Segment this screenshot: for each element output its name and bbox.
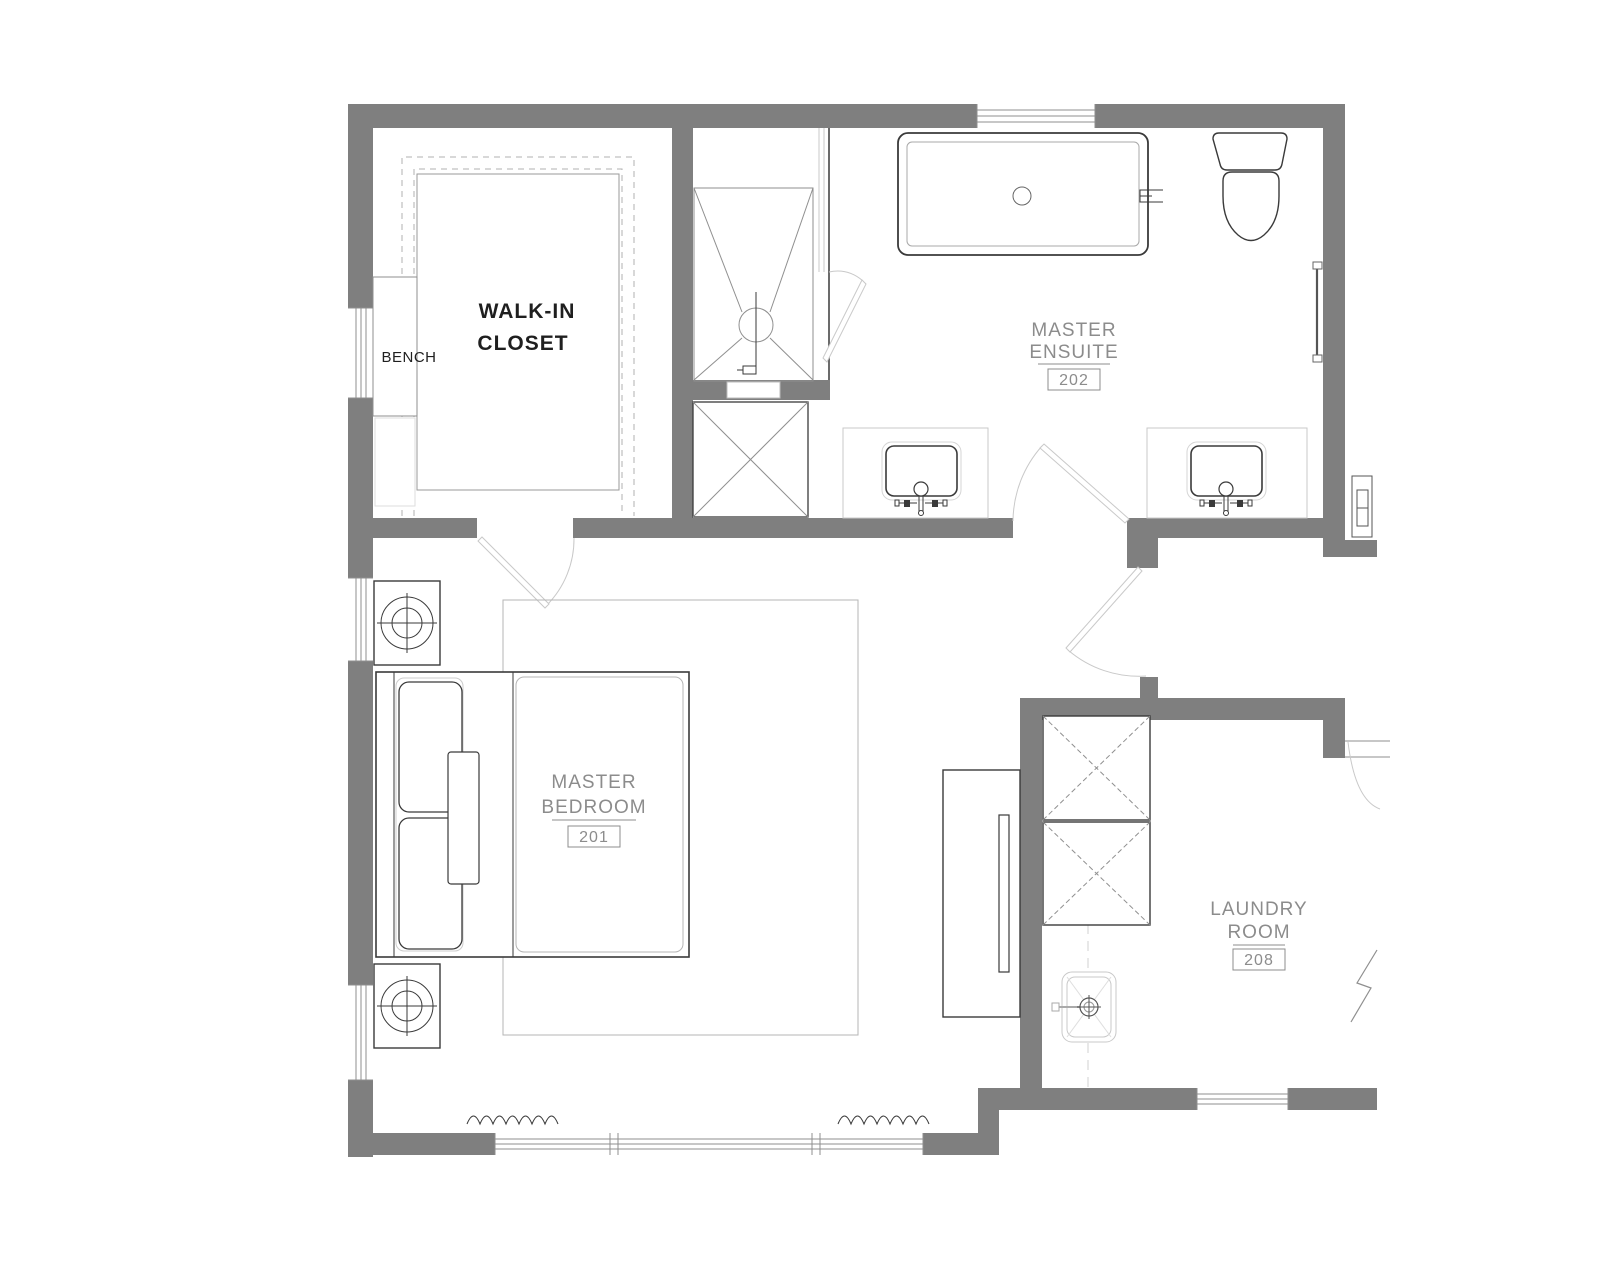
toilet — [1213, 133, 1287, 241]
towel-bar — [1313, 262, 1322, 362]
vanity-right — [1147, 428, 1307, 518]
break-line — [1351, 950, 1377, 1022]
dryer — [1043, 822, 1150, 925]
hall-door — [1066, 567, 1146, 676]
tv-console — [943, 770, 1020, 1017]
window-left-closet — [348, 308, 373, 398]
electrical-panel — [1352, 476, 1372, 537]
bolster — [448, 752, 479, 884]
window-bottom-laundry — [1197, 1088, 1288, 1110]
drapery-symbols — [467, 1116, 929, 1124]
walkin-closet-label-line2: CLOSET — [477, 332, 568, 355]
svg-text:BEDROOM: BEDROOM — [541, 797, 646, 818]
closet-door — [478, 537, 574, 608]
floor-plan: WALK-IN CLOSET BENCH MASTER ENSUITE 202 … — [0, 0, 1600, 1280]
shower-threshold — [727, 382, 780, 398]
svg-text:LAUNDRY: LAUNDRY — [1210, 899, 1307, 920]
utility-sink — [1052, 972, 1116, 1042]
bathtub — [898, 133, 1163, 255]
floor-plan-drawing: WALK-IN CLOSET BENCH MASTER ENSUITE 202 … — [0, 0, 1600, 1280]
window-left-bed-lower — [348, 985, 373, 1080]
walls — [348, 104, 1377, 1157]
walk-in-shower — [694, 128, 866, 398]
bench — [373, 277, 417, 506]
bench-label: BENCH — [381, 349, 436, 366]
ensuite-door — [1013, 444, 1129, 523]
nightstand-lower — [374, 964, 440, 1048]
vanity-left — [843, 428, 988, 518]
windows — [348, 104, 1288, 1155]
shower-glass-door — [819, 128, 866, 380]
laundry-entry-door — [1345, 741, 1390, 809]
window-left-bed-upper — [348, 578, 373, 661]
laundry-label: LAUNDRY ROOM 208 — [1210, 899, 1307, 970]
svg-text:MASTER: MASTER — [1031, 320, 1116, 341]
tv — [999, 815, 1009, 972]
window-bottom-bedroom — [495, 1133, 923, 1155]
window-top-ensuite — [977, 104, 1095, 128]
svg-text:202: 202 — [1059, 372, 1089, 389]
svg-text:201: 201 — [579, 829, 609, 846]
svg-text:ROOM: ROOM — [1227, 922, 1290, 943]
linen-cabinet — [693, 402, 808, 517]
ensuite-label: MASTER ENSUITE 202 — [1029, 320, 1118, 390]
svg-text:ENSUITE: ENSUITE — [1029, 342, 1118, 363]
walkin-closet-label-line1: WALK-IN — [479, 300, 576, 323]
svg-text:MASTER: MASTER — [551, 772, 636, 793]
washer — [1043, 716, 1150, 820]
svg-text:208: 208 — [1244, 952, 1274, 969]
nightstand-upper — [374, 581, 440, 665]
